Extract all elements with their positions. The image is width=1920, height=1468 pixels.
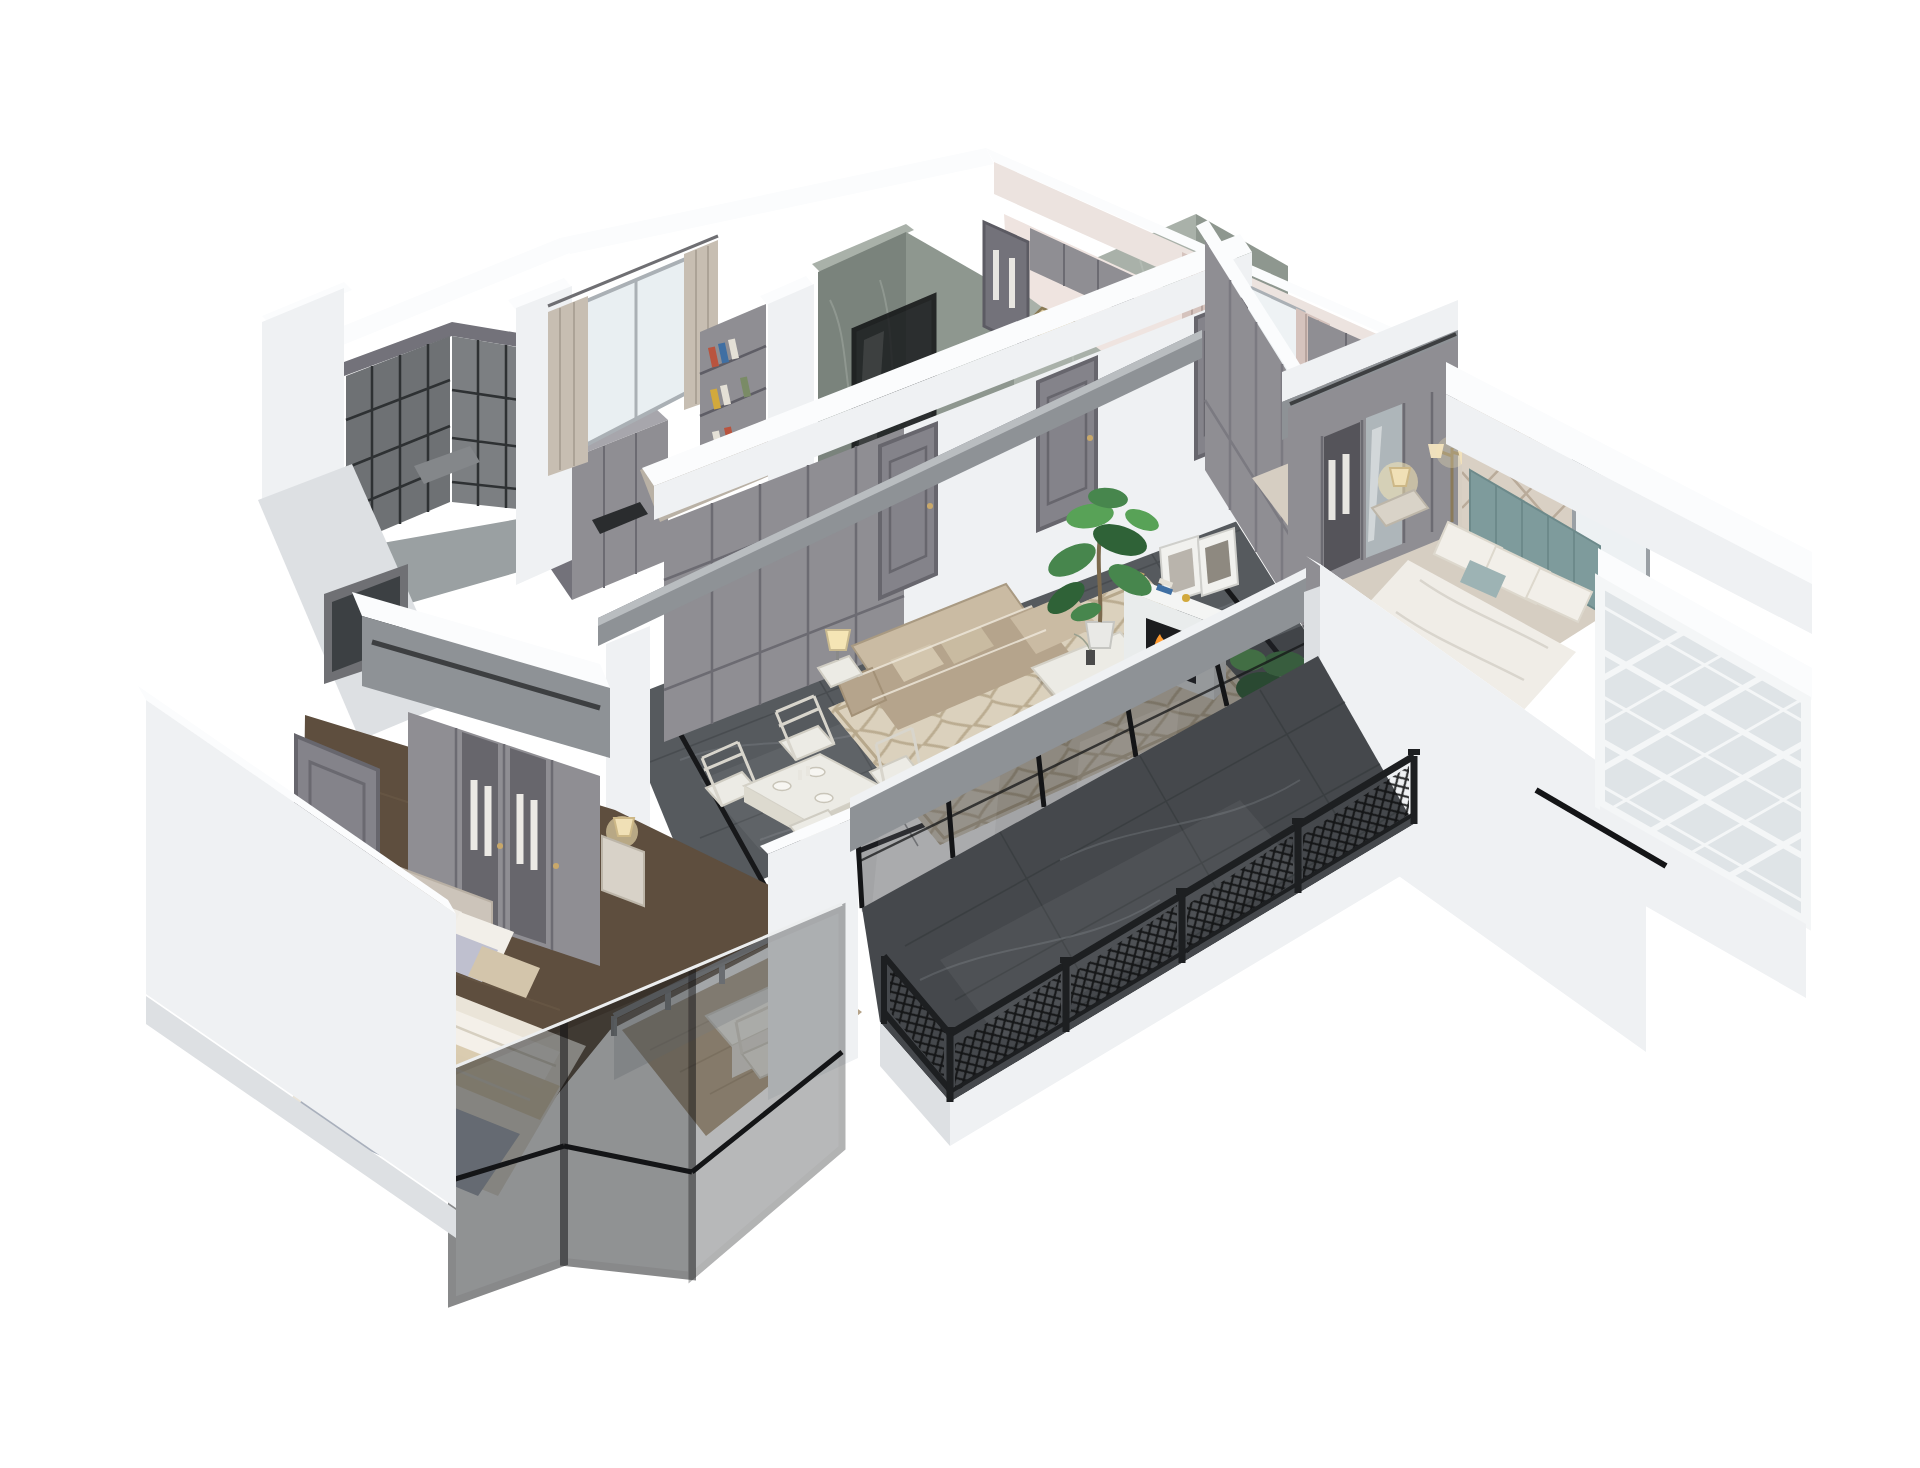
door-leaf [880,424,936,598]
enclosure-pane [564,972,692,1276]
nightstand-lamp [602,816,644,906]
vase [1086,650,1095,665]
table-lamp-shade [1390,468,1410,486]
enclosure-pane-side [692,908,842,1276]
glass-door-pane [510,748,546,944]
hall-door-2 [1038,358,1096,530]
art-frame-inner [1168,548,1195,594]
floorplan-render [0,0,1920,1468]
plant-pot [1086,622,1114,648]
door-knob [927,503,933,509]
back-wall-cap-ridge [560,148,994,254]
door-leaf [1038,358,1096,530]
scene-canvas [0,0,1920,1468]
table-lamp-shade [614,818,634,836]
hall-door-1 [880,424,936,598]
lamp-shade [826,630,850,650]
door-knob [1087,435,1093,441]
curtain-left [548,296,588,476]
